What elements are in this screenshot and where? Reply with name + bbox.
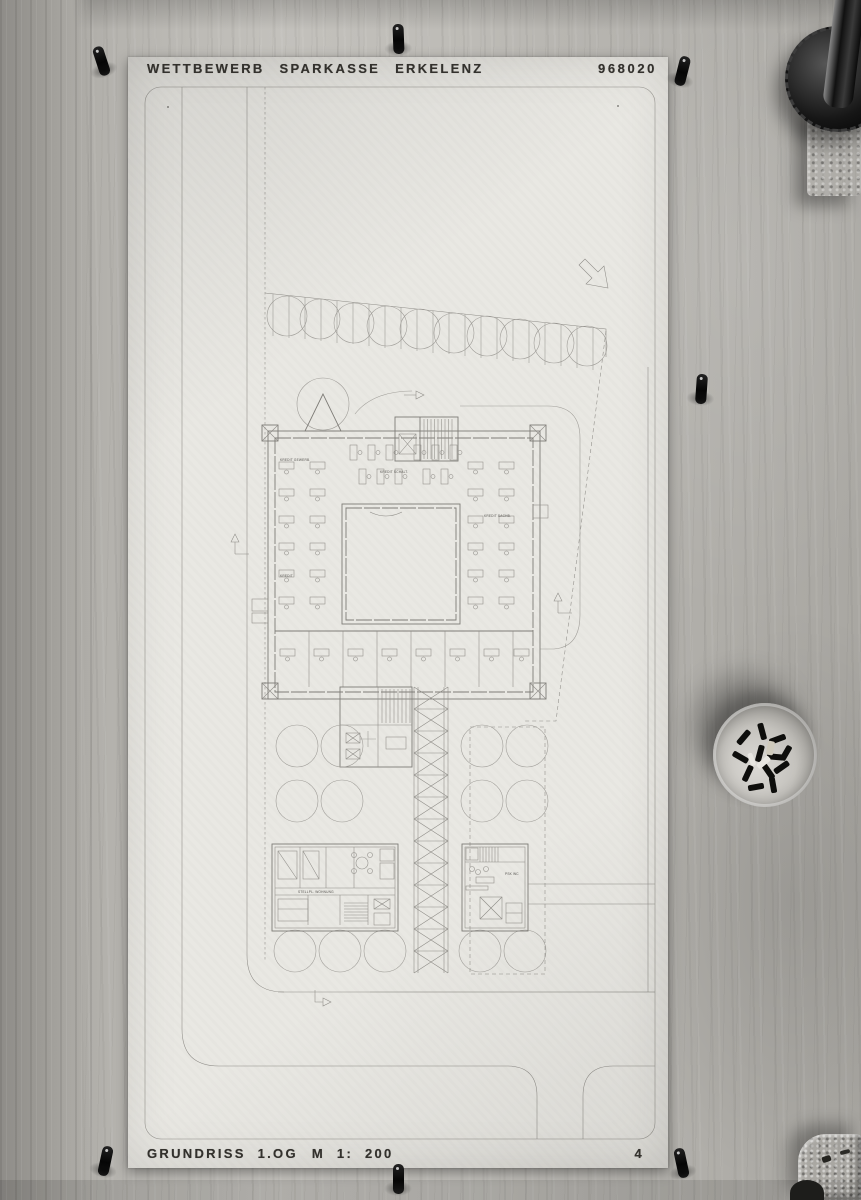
north-arrow-icon	[579, 259, 608, 288]
project-number: 968020	[598, 61, 657, 76]
push-pin	[673, 1147, 690, 1179]
floor-plan-label: GRUNDRISS 1.OG	[147, 1146, 298, 1161]
room-label: KREDIT	[280, 574, 293, 578]
metal-housing-knob	[790, 1180, 824, 1200]
sheet-border	[145, 87, 655, 1139]
loose-push-pin	[695, 374, 708, 405]
cup-of-pins	[713, 703, 817, 807]
push-pin	[392, 24, 404, 54]
property-boundary	[524, 331, 606, 721]
drawing-title: WETTBEWERB SPARKASSE ERKELENZ	[147, 61, 484, 76]
kiosk-building: PSK WC	[462, 844, 655, 931]
metal-clamp	[793, 0, 861, 198]
parking-row	[265, 293, 607, 370]
stair-core-top	[395, 417, 458, 461]
entrance-canopy	[297, 378, 349, 431]
room-label: KREDIT SCHALT.	[380, 470, 408, 474]
scale-label: M 1: 200	[312, 1146, 394, 1161]
push-pin	[393, 1164, 404, 1194]
drawing-sheet: KREDIT GEWERB. KREDIT SCHALT. KREDIT SAC…	[128, 57, 668, 1168]
photo-of-drawing-on-wooden-board: KREDIT GEWERB. KREDIT SCHALT. KREDIT SAC…	[0, 0, 861, 1200]
site-plan-drawing: KREDIT GEWERB. KREDIT SCHALT. KREDIT SAC…	[128, 57, 668, 1168]
section-marker-icons	[231, 391, 572, 1006]
pins-in-cup	[713, 703, 817, 807]
office-band-bottom	[275, 631, 533, 687]
room-label: STELLPL. WOHNUNG	[298, 890, 334, 894]
courtyard	[342, 504, 460, 624]
push-pin	[97, 1145, 114, 1177]
metal-housing	[788, 1116, 861, 1200]
room-label: KREDIT SACHB.	[484, 514, 511, 518]
wood-plank-left	[0, 0, 92, 1200]
sheet-number: 4	[634, 1146, 644, 1161]
push-pin	[92, 45, 112, 77]
room-label: KREDIT GEWERB.	[280, 458, 310, 462]
pergola-walkway	[414, 687, 448, 973]
push-pin	[674, 55, 692, 87]
apartment-building: STELLPL. WOHNUNG	[272, 844, 398, 931]
room-label: PSK WC	[505, 872, 519, 876]
garden-trees	[274, 725, 548, 974]
wood-shadow-bottom	[0, 1180, 861, 1200]
main-building: KREDIT GEWERB. KREDIT SCHALT. KREDIT SAC…	[252, 378, 548, 699]
footer-caption: GRUNDRISS 1.OGM 1: 200	[147, 1146, 394, 1161]
